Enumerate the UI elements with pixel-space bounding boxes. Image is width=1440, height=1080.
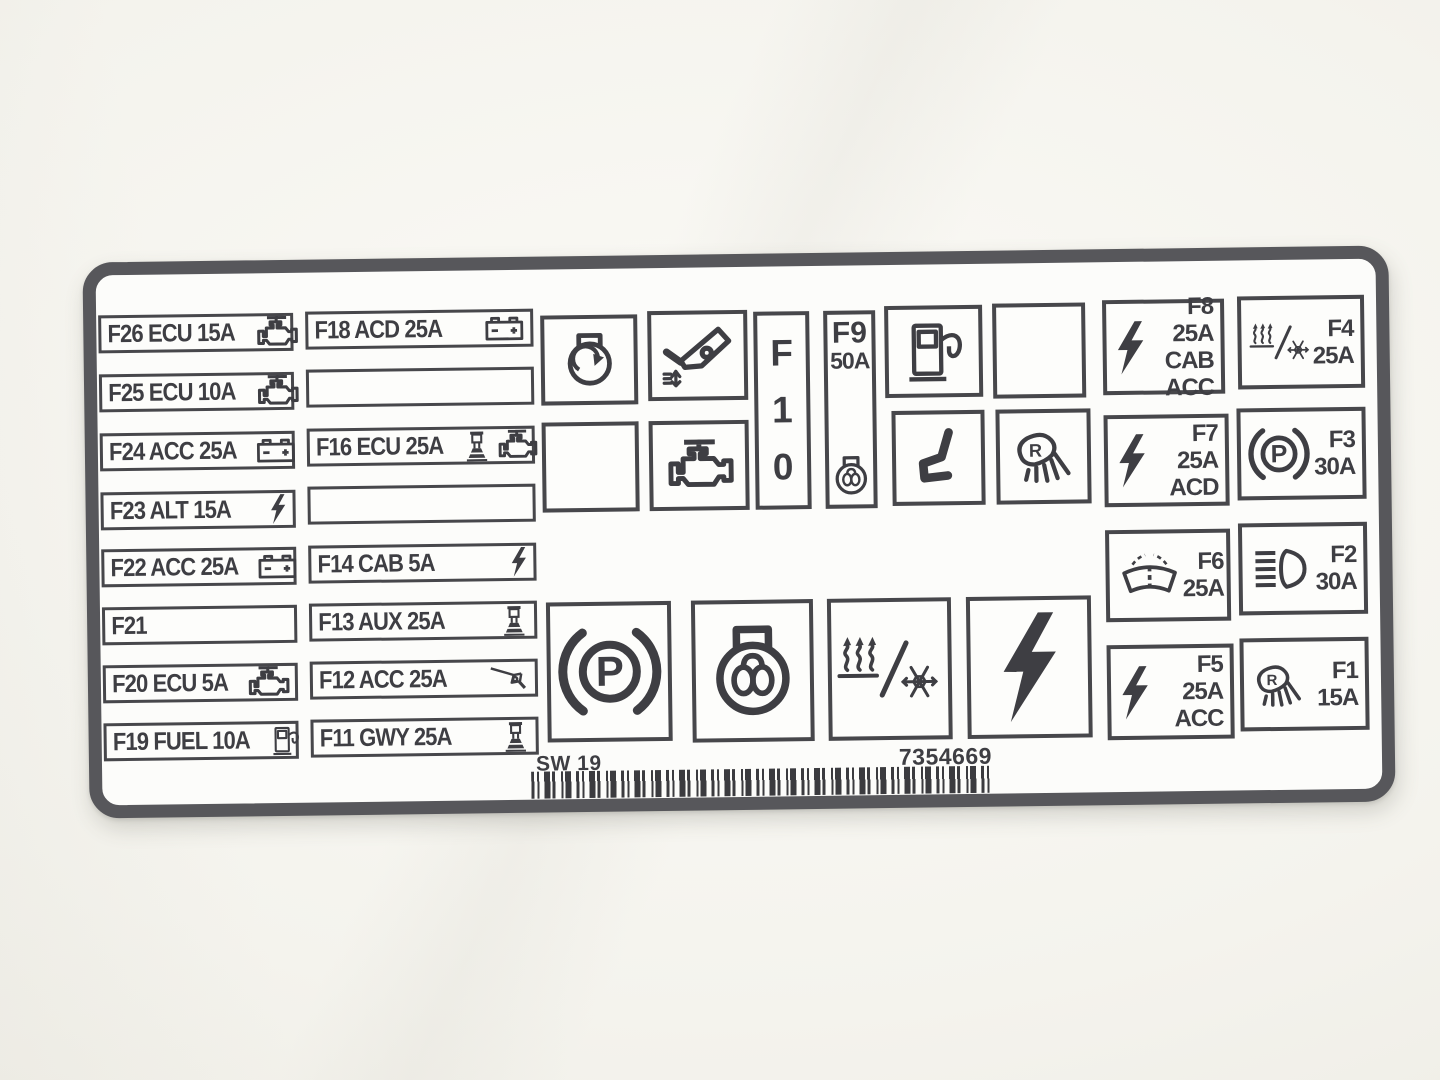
icon-box-blank <box>542 421 640 512</box>
fuse-strip-blank <box>307 484 535 525</box>
fuse-amp: 30A <box>1314 453 1355 481</box>
fuse-amp: 15A <box>1317 683 1358 711</box>
fuse-label: F13 AUX 25A <box>312 606 445 637</box>
engine-icon <box>662 436 737 496</box>
fuse-strip-f16: F16 ECU 25A <box>307 426 535 467</box>
fuse-strip-f25: F25 ECU 10A <box>99 372 294 413</box>
fuse-amp: 25A <box>1313 341 1354 369</box>
battery-icon <box>256 552 298 580</box>
alternator-icon <box>558 329 621 392</box>
fuse-strip-f11: F11 GWY 25A <box>310 717 538 758</box>
heater-snowflake-icon <box>835 632 944 705</box>
lightning-icon <box>994 612 1065 723</box>
fuse-id: F3 <box>1314 426 1355 454</box>
fuse-box-f4: F4 25A <box>1237 295 1365 390</box>
fuse-id: F2 <box>1315 541 1356 569</box>
windshield-wiper-icon <box>1116 549 1183 603</box>
fuse-label: 1 <box>772 389 793 431</box>
icon-box-reverse-lamp <box>995 408 1091 504</box>
engine-icon <box>244 663 290 701</box>
fuse-strip-f18: F18 ACD 25A <box>305 309 533 350</box>
fuse-box-f5: F5 25A ACC <box>1107 644 1235 741</box>
fuel-pump-icon <box>269 724 300 755</box>
fuse-strip-f20: F20 ECU 5A <box>103 663 298 704</box>
fuse-id: F8 <box>1147 292 1213 320</box>
icon-box-engine <box>649 420 750 511</box>
fuse-id: F6 <box>1182 548 1223 576</box>
fuse-label: F <box>770 333 793 375</box>
fuse-amp: 50A <box>830 348 870 373</box>
fuse-id: F1 <box>1317 656 1358 684</box>
photo-background: F26 ECU 15A F25 ECU 10A F24 ACC 25A F23 … <box>0 0 1440 1080</box>
fuse-strip-f26: F26 ECU 15A <box>98 313 293 354</box>
fuel-pump-icon <box>901 319 966 384</box>
fuse-strip-f10: F 1 0 <box>753 311 812 510</box>
fuse-label: F16 ECU 25A <box>310 431 444 462</box>
fuse-circuit: CAB ACC <box>1148 346 1215 401</box>
fuse-label: F14 CAB 5A <box>311 548 435 579</box>
tipping-tray-icon <box>488 663 530 693</box>
fuse-strip-f22: F22 ACC 25A <box>101 547 296 588</box>
parking-brake-icon <box>557 619 662 724</box>
headlight-icon <box>1249 548 1312 591</box>
reverse-lamp-icon <box>1009 425 1078 489</box>
fuse-label: 0 <box>773 446 794 488</box>
fuse-box-f2: F2 30A <box>1238 522 1368 616</box>
fuse-id: F7 <box>1169 419 1218 447</box>
lightning-icon <box>1113 320 1148 374</box>
pedestal-machine-icon <box>499 604 529 635</box>
fuse-label: F11 GWY 25A <box>313 722 451 753</box>
fuse-strip-blank <box>306 367 534 408</box>
fuse-strip-f21: F21 <box>102 605 297 646</box>
fuse-strip-f9: F9 50A <box>823 310 878 509</box>
engine-icon <box>253 313 299 351</box>
fuse-strip-f14: F14 CAB 5A <box>308 543 536 584</box>
fuse-box-f6: F6 25A <box>1105 529 1231 623</box>
fuse-label: F22 ACC 25A <box>104 552 238 583</box>
fuse-amp: 25A <box>1169 446 1218 474</box>
fuse-label: F26 ECU 15A <box>101 318 235 349</box>
icon-box-cab-tilt <box>647 310 748 401</box>
lightning-icon <box>509 547 528 577</box>
cab-tilt-icon <box>658 321 737 390</box>
fuse-amp: 25A <box>1183 575 1224 603</box>
reverse-lamp-icon <box>1251 658 1308 711</box>
fuse-label: F9 <box>832 318 867 348</box>
lightning-icon <box>1115 434 1150 488</box>
icon-box-parking-brake <box>546 601 673 743</box>
icon-box-glow-plug <box>691 599 815 743</box>
lightning-icon <box>1118 665 1153 719</box>
icon-box-alternator <box>540 314 638 405</box>
fuse-box-f7: F7 25A ACD <box>1104 414 1230 508</box>
pedestal-machine-icon <box>461 430 491 461</box>
seat-icon <box>906 425 971 490</box>
fuse-label: F19 FUEL 10A <box>107 726 251 757</box>
barcode <box>531 766 992 799</box>
fuse-strip-f24: F24 ACC 25A <box>100 431 295 472</box>
fuse-box-f8: F8 25A CAB ACC <box>1102 299 1225 396</box>
fuse-label: F24 ACC 25A <box>103 436 237 467</box>
fuse-box-f3: F3 30A <box>1236 407 1366 501</box>
glow-plug-icon <box>703 621 802 720</box>
fuse-strip-f12: F12 ACC 25A <box>310 659 538 700</box>
lightning-icon <box>268 494 287 524</box>
battery-icon <box>483 314 525 342</box>
fuse-amp: 25A <box>1174 678 1223 706</box>
fuse-label: F23 ALT 15A <box>103 495 231 526</box>
fuse-amp: 30A <box>1315 568 1356 596</box>
label-content: F26 ECU 15A F25 ECU 10A F24 ACC 25A F23 … <box>96 259 1383 806</box>
icon-box-lightning <box>966 595 1093 739</box>
fuse-label: F12 ACC 25A <box>313 664 447 695</box>
fuse-strip-f13: F13 AUX 25A <box>309 601 537 642</box>
fuse-id: F5 <box>1174 651 1223 679</box>
fuse-label: F25 ECU 10A <box>102 377 236 408</box>
fuse-id: F4 <box>1312 314 1353 342</box>
fuse-box-label: F26 ECU 15A F25 ECU 10A F24 ACC 25A F23 … <box>82 245 1395 818</box>
battery-icon <box>255 436 297 464</box>
heater-snowflake-icon <box>1248 320 1313 364</box>
fuse-label: F18 ACD 25A <box>308 314 442 345</box>
pedestal-machine-icon <box>500 720 530 751</box>
fuse-box-f1: F1 15A <box>1239 637 1369 732</box>
icon-box-seat <box>891 410 985 506</box>
icon-box-blank <box>992 302 1086 398</box>
fuse-strip-f23: F23 ALT 15A <box>100 490 295 531</box>
fuse-circuit: ACD <box>1169 473 1218 501</box>
glow-plug-icon <box>830 454 873 497</box>
engine-icon <box>494 427 538 463</box>
fuse-label: F20 ECU 5A <box>106 668 228 699</box>
icon-box-heater-snowflake <box>827 597 953 741</box>
fuse-label: F21 <box>105 611 147 641</box>
icon-box-fuel <box>884 305 983 398</box>
fuse-strip-f19: F19 FUEL 10A <box>103 721 298 762</box>
fuse-circuit: ACC <box>1174 705 1223 733</box>
parking-brake-icon <box>1248 423 1311 486</box>
engine-icon <box>254 372 300 410</box>
fuse-amp: 25A <box>1147 319 1213 347</box>
